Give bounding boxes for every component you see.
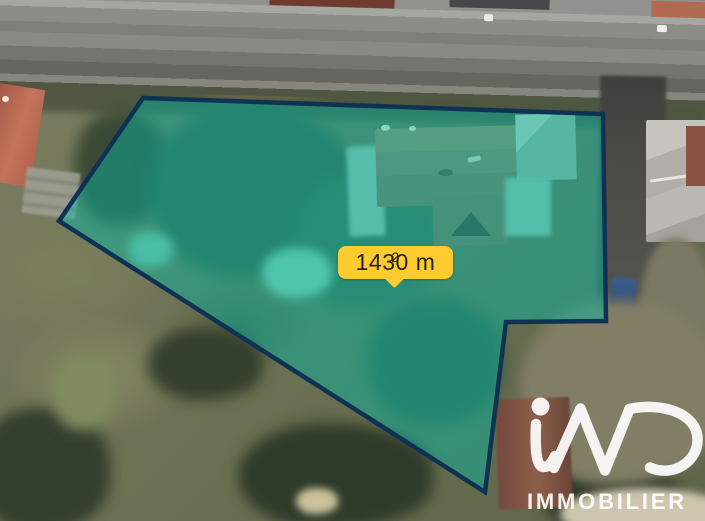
brand-watermark: IMMOBILIER [520, 392, 705, 521]
brand-subtext: IMMOBILIER [527, 489, 687, 515]
aerial-property-photo: 1430 m2 IMMOBILIER [0, 0, 705, 521]
iad-logo-icon [520, 392, 705, 487]
area-label: 1430 m2 [338, 246, 453, 279]
